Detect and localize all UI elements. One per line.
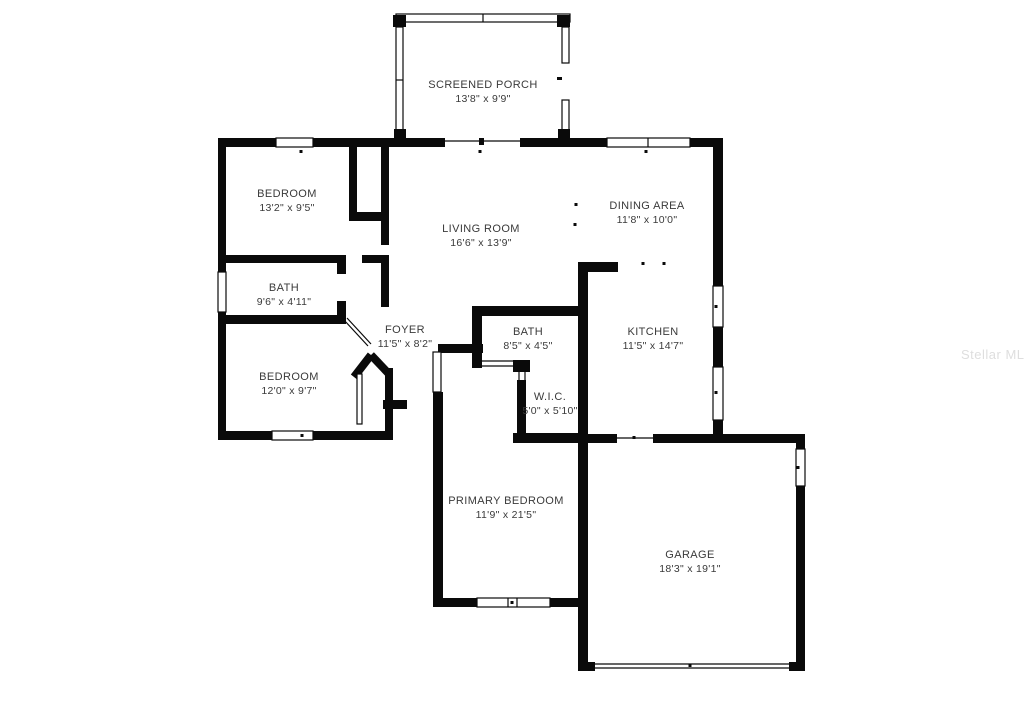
- window: [607, 138, 690, 147]
- floor-plan: SCREENED PORCH 13'8" x 9'9" BEDROOM 13'2…: [0, 0, 1024, 713]
- window: [218, 272, 226, 312]
- room-label-bedroom-2: BEDROOM 12'0" x 9'7": [259, 370, 319, 398]
- room-label-living-room: LIVING ROOM 16'6" x 13'9": [442, 222, 520, 250]
- room-label-wic: W.I.C. 5'0" x 5'10": [522, 390, 577, 418]
- room-label-bedroom-1: BEDROOM 13'2" x 9'5": [257, 187, 317, 215]
- room-label-primary-bedroom: PRIMARY BEDROOM 11'9" x 21'5": [448, 494, 564, 522]
- mls-watermark: Stellar MLS: [961, 347, 1024, 362]
- room-label-dining-area: DINING AREA 11'8" x 10'0": [609, 199, 684, 227]
- floor-plan-drawing: [0, 0, 1024, 713]
- room-label-bath-1: BATH 9'6" x 4'11": [257, 281, 312, 309]
- room-label-screened-porch: SCREENED PORCH 13'8" x 9'9": [428, 78, 538, 106]
- window: [276, 138, 313, 147]
- window: [272, 431, 313, 440]
- room-label-bath-2: BATH 8'5" x 4'5": [503, 325, 552, 353]
- room-label-garage: GARAGE 18'3" x 19'1": [659, 548, 721, 576]
- room-label-foyer: FOYER 11'5" x 8'2": [378, 323, 433, 351]
- room-label-kitchen: KITCHEN 11'5" x 14'7": [623, 325, 684, 353]
- screened-porch-walls: [393, 14, 570, 138]
